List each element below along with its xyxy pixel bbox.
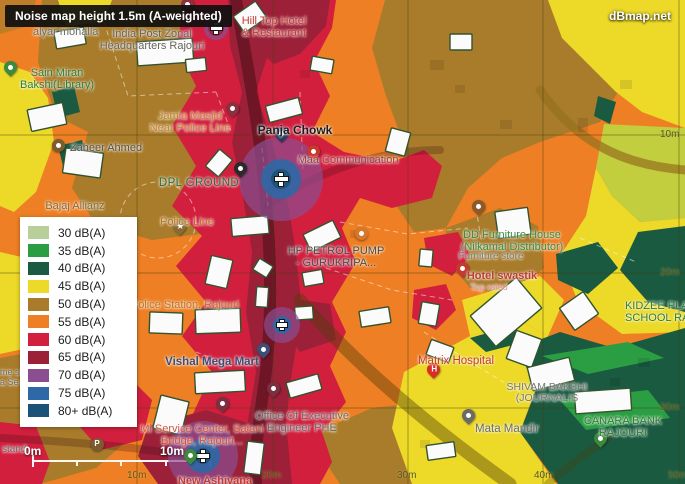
label-india-post: India Post ZonalHeadquarters Rajouri — [100, 29, 205, 53]
label-mi-service-center: Mi Service Center, SalaniBridge, Rajouri… — [140, 424, 264, 448]
legend-swatch — [28, 244, 49, 257]
legend-swatch — [28, 404, 49, 417]
grid-label-bottom: 40m — [534, 470, 553, 481]
legend-swatch — [28, 315, 49, 328]
label-maa-communication: Maa Communication — [298, 155, 399, 167]
grid-label-bottom: 10m — [127, 470, 146, 481]
legend-item: 55 dB(A) — [28, 313, 129, 331]
label-vishal-mega-mart: Vishal Mega Mart — [165, 356, 259, 368]
legend-item: 45 dB(A) — [28, 277, 129, 295]
label-hilltop-hotel: Hill Top Hotel& Restaurant — [242, 16, 307, 40]
legend-item: 80+ dB(A) — [28, 402, 129, 420]
label-stand: stand — [2, 445, 26, 456]
grid-label-right: 10m — [660, 129, 679, 140]
grid-label-right: 30m — [660, 402, 679, 413]
legend-item: 40 dB(A) — [28, 260, 129, 278]
label-zaheer-ahmed: Zaheer Ahmed — [70, 143, 142, 155]
map-viewport[interactable]: ★HPalyar mohallaIndia Post ZonalHeadquar… — [0, 0, 685, 484]
label-panja-chowk: Panja Chowk — [258, 124, 333, 137]
label-edge-partial: me sa Se — [0, 368, 20, 387]
salani-bridge-pin — [213, 394, 231, 412]
label-shivam-bakshi: SHIVAM BAKSHI(JOURNALIS — [507, 382, 588, 405]
label-alyar-mohalla: alyar mohalla — [33, 27, 98, 39]
grid-label-bottom: 20m — [262, 470, 281, 481]
legend-item: 50 dB(A) — [28, 295, 129, 313]
legend-item: 75 dB(A) — [28, 384, 129, 402]
fuel-station-icon — [355, 227, 368, 240]
library-pin — [1, 58, 19, 76]
legend-swatch — [28, 333, 49, 346]
legend-swatch — [28, 369, 49, 382]
legend-swatch — [28, 262, 49, 275]
label-bajaj-allianz: Bajaj Allianz — [45, 201, 104, 213]
legend-label: 65 dB(A) — [58, 350, 105, 364]
label-kidzee-school: KIDZEE PLAYSCHOOL RAJ — [625, 301, 685, 325]
legend-panel: 30 dB(A)35 dB(A)40 dB(A)45 dB(A)50 dB(A)… — [20, 217, 137, 427]
label-new-ashiyana: New Ashiyana — [178, 476, 252, 484]
label-sain-miran-library: Sain MiranBakshi(Library) — [20, 68, 94, 92]
legend-swatch — [28, 351, 49, 364]
legend-item: 35 dB(A) — [28, 242, 129, 260]
grid-label-right: 20m — [660, 267, 679, 278]
legend-label: 70 dB(A) — [58, 368, 105, 382]
label-mata-mandir: Mata Mandir — [475, 423, 539, 435]
legend-item: 60 dB(A) — [28, 331, 129, 349]
zaheer-ahmed-pin — [52, 139, 65, 152]
legend-label: 80+ dB(A) — [58, 404, 112, 418]
legend-label: 40 dB(A) — [58, 261, 105, 275]
label-matrix-hospital: Matrix Hospital — [418, 355, 494, 367]
legend-label: 75 dB(A) — [58, 386, 105, 400]
legend-item: 65 dB(A) — [28, 349, 129, 367]
label-office-phe: Office Of ExecutiveEngineer PHE — [255, 411, 349, 435]
legend-label: 50 dB(A) — [58, 297, 105, 311]
crosshair-icon — [276, 319, 288, 331]
crosshair-icon — [196, 449, 210, 463]
map-title: Noise map height 1.5m (A-weighted) — [5, 5, 232, 27]
parking-icon: P — [91, 438, 104, 451]
legend-item: 70 dB(A) — [28, 366, 129, 384]
legend-label: 35 dB(A) — [58, 244, 105, 258]
label-police-line: Police Line — [160, 217, 214, 229]
label-dpl-ground: DPL GROUND — [159, 177, 239, 189]
legend-swatch — [28, 387, 49, 400]
legend-label: 55 dB(A) — [58, 315, 105, 329]
label-hp-petrol-pump: HP PETROL PUMP- GURUKRIPA... — [288, 246, 385, 270]
legend-swatch — [28, 226, 49, 239]
grid-label-bottom: 30m — [397, 470, 416, 481]
label-jamia-masjid: Jamia MasjidNear Police Line — [150, 111, 231, 135]
mata-mandir-pin — [459, 406, 477, 424]
legend-label: 60 dB(A) — [58, 333, 105, 347]
label-police-station: Police Station, Rajouri — [131, 300, 239, 312]
grid-label-bottom: 50m — [668, 470, 685, 481]
dd-furniture-pin — [469, 197, 487, 215]
crosshair-icon — [274, 172, 289, 187]
label-canara-bank: CANARA BANKRAJOURI — [584, 416, 662, 440]
legend-label: 30 dB(A) — [58, 226, 105, 240]
legend-label: 45 dB(A) — [58, 279, 105, 293]
legend-item: 30 dB(A) — [28, 224, 129, 242]
label-top-rated: Top rated — [470, 283, 508, 293]
brand-watermark: dBmap.net — [609, 9, 671, 23]
legend-swatch — [28, 298, 49, 311]
label-furniture-store: Furniture store — [458, 252, 523, 263]
office-phe-pin — [264, 379, 282, 397]
legend-swatch — [28, 280, 49, 293]
